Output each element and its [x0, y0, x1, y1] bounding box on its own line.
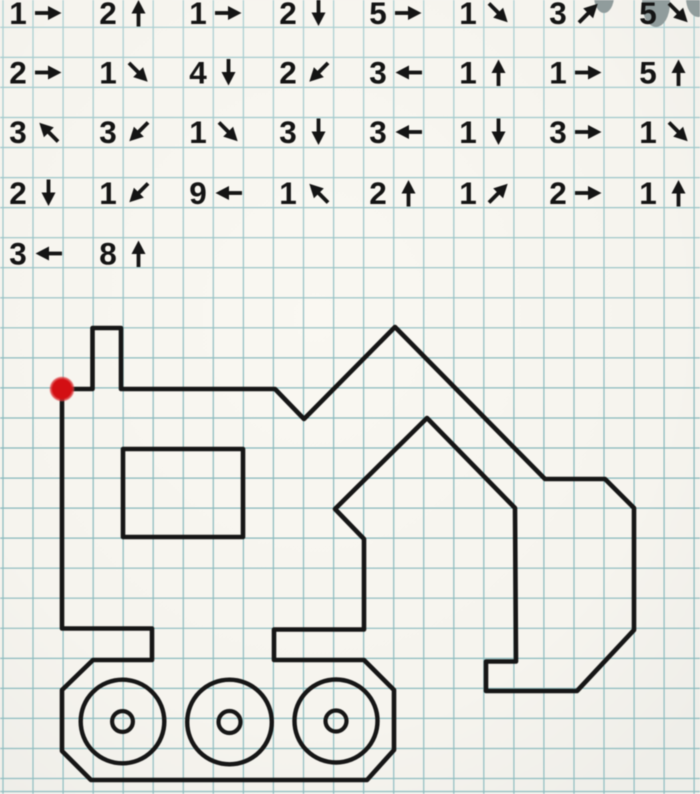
svg-text:1: 1	[189, 0, 207, 31]
svg-text:2: 2	[9, 175, 27, 211]
svg-text:2: 2	[549, 175, 567, 211]
svg-text:2: 2	[279, 0, 297, 31]
svg-text:3: 3	[549, 114, 567, 150]
svg-text:3: 3	[279, 114, 297, 150]
svg-text:1: 1	[639, 175, 657, 211]
svg-text:3: 3	[9, 236, 27, 272]
svg-text:2: 2	[9, 55, 27, 91]
svg-text:1: 1	[279, 175, 297, 211]
svg-text:1: 1	[459, 114, 477, 150]
svg-text:1: 1	[9, 0, 27, 31]
svg-text:1: 1	[459, 0, 477, 31]
svg-text:4: 4	[189, 55, 207, 91]
svg-text:3: 3	[9, 114, 27, 150]
svg-text:3: 3	[369, 55, 387, 91]
svg-text:1: 1	[459, 55, 477, 91]
svg-text:2: 2	[279, 55, 297, 91]
svg-text:5: 5	[369, 0, 387, 31]
svg-text:5: 5	[639, 0, 657, 31]
svg-text:1: 1	[99, 175, 117, 211]
svg-text:8: 8	[99, 236, 117, 272]
svg-text:9: 9	[189, 175, 207, 211]
svg-text:1: 1	[549, 55, 567, 91]
svg-text:2: 2	[369, 175, 387, 211]
svg-text:1: 1	[189, 114, 207, 150]
svg-text:3: 3	[369, 114, 387, 150]
svg-text:1: 1	[459, 175, 477, 211]
svg-text:3: 3	[99, 114, 117, 150]
svg-text:2: 2	[99, 0, 117, 31]
svg-text:5: 5	[639, 55, 657, 91]
svg-text:1: 1	[99, 55, 117, 91]
svg-text:3: 3	[549, 0, 567, 31]
svg-text:1: 1	[639, 114, 657, 150]
